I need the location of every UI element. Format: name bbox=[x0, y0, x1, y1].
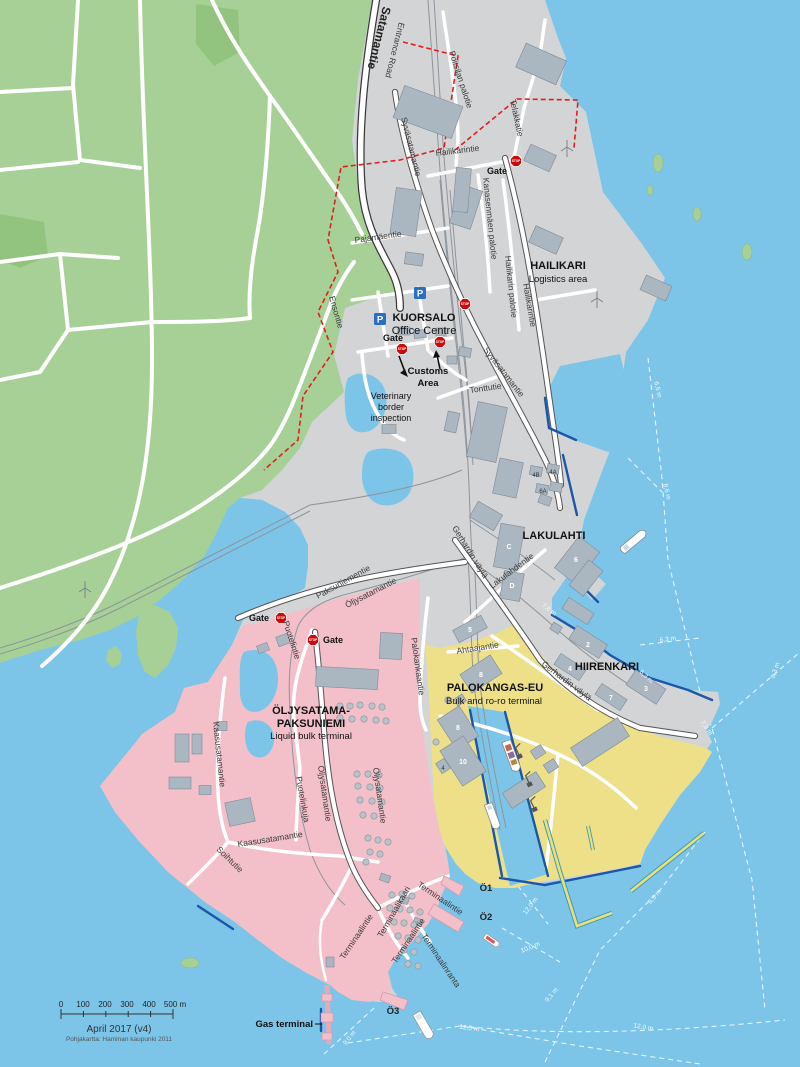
label-bldg-num-8a: 8 bbox=[479, 672, 483, 679]
label-gate-hailikari: Gate bbox=[487, 166, 507, 176]
storage-tank bbox=[383, 718, 389, 724]
label-pier-o2: Ö2 bbox=[480, 912, 493, 923]
label-bldg-num-7: 7 bbox=[609, 695, 613, 702]
building bbox=[379, 632, 402, 659]
label-bldg-num-c: C bbox=[506, 544, 511, 551]
label-area-lakulahti: LAKULAHTI bbox=[523, 530, 586, 542]
stop-sign-icon: STOP bbox=[510, 155, 521, 166]
storage-tank bbox=[371, 813, 377, 819]
label-area-hailikari: HAILIKARI bbox=[530, 260, 586, 272]
storage-tank bbox=[377, 851, 383, 857]
storage-tank bbox=[361, 716, 367, 722]
storage-tank bbox=[367, 784, 373, 790]
label-bldg-num-d: D bbox=[509, 583, 514, 590]
label-area-hiirenkari: HIIRENKARI bbox=[575, 661, 639, 673]
building bbox=[458, 347, 471, 358]
port-map: STOPSTOPSTOPSTOPSTOPSTOPPP SatamantieEnt… bbox=[0, 0, 800, 1067]
storage-tank bbox=[401, 920, 407, 926]
building bbox=[316, 666, 379, 689]
stop-sign-icon: STOP bbox=[459, 298, 470, 309]
stop-sign-text: STOP bbox=[309, 638, 318, 642]
building bbox=[404, 252, 423, 266]
label-bldg-num-6a: 6A bbox=[539, 489, 546, 495]
label-bldg-num-8b: 8 bbox=[456, 725, 460, 732]
label-bldg-num-2: 2 bbox=[586, 642, 590, 649]
label-bldg-num-10: 10 bbox=[459, 759, 467, 766]
label-vet-line2: border bbox=[378, 402, 404, 412]
parking-icon: P bbox=[374, 313, 386, 326]
storage-tank bbox=[379, 704, 385, 710]
building bbox=[382, 425, 396, 434]
label-gate-kuorsalo: Gate bbox=[383, 333, 403, 343]
parking-icon-letter: P bbox=[417, 289, 424, 300]
label-bldg-num-5: 5 bbox=[468, 627, 472, 634]
label-customs-line1: Customs bbox=[408, 366, 449, 377]
label-area-hailikari-sub: Logistics area bbox=[529, 274, 588, 285]
label-scale-0: 0 bbox=[59, 1000, 64, 1009]
storage-tank bbox=[373, 717, 379, 723]
storage-tank bbox=[395, 933, 401, 939]
stop-sign-icon: STOP bbox=[307, 634, 318, 645]
label-vet-line3: inspection bbox=[371, 413, 412, 423]
storage-tank bbox=[363, 859, 369, 865]
label-map-source: Pohjakartta: Haminan kaupunki 2011 bbox=[66, 1036, 172, 1043]
label-pier-o1: Ö1 bbox=[480, 883, 493, 894]
label-map-date: April 2017 (v4) bbox=[86, 1024, 151, 1035]
stop-sign-text: STOP bbox=[512, 159, 521, 163]
stop-sign-text: STOP bbox=[398, 347, 407, 351]
building bbox=[192, 734, 202, 754]
label-scale-200: 200 bbox=[98, 1000, 112, 1009]
storage-tank bbox=[367, 849, 373, 855]
storage-tank bbox=[415, 963, 421, 969]
label-scale-100: 100 bbox=[76, 1000, 90, 1009]
building bbox=[175, 734, 189, 762]
port-map-page: STOPSTOPSTOPSTOPSTOPSTOPPP SatamantieEnt… bbox=[0, 0, 800, 1067]
label-area-oljysatama-2: PAKSUNIEMI bbox=[277, 718, 345, 730]
stop-sign-text: STOP bbox=[436, 340, 445, 344]
building bbox=[169, 777, 191, 789]
storage-tank bbox=[354, 771, 360, 777]
label-area-palokangas-sub: Bulk and ro-ro terminal bbox=[446, 696, 542, 707]
label-bldg-num-3: 3 bbox=[644, 686, 648, 693]
storage-tank bbox=[365, 771, 371, 777]
storage-tank bbox=[417, 909, 423, 915]
stop-sign-text: STOP bbox=[461, 302, 470, 306]
label-area-palokangas: PALOKANGAS-EU bbox=[447, 682, 543, 694]
label-scale-400: 400 bbox=[142, 1000, 156, 1009]
storage-tank bbox=[385, 839, 391, 845]
storage-tank bbox=[407, 907, 413, 913]
label-scale-300: 300 bbox=[120, 1000, 134, 1009]
label-area-oljysatama-sub: Liquid bulk terminal bbox=[270, 731, 352, 742]
label-bldg-num-4a: 4A bbox=[549, 470, 556, 476]
label-gas-terminal: Gas terminal bbox=[255, 1019, 313, 1030]
storage-tank bbox=[411, 949, 417, 955]
storage-tank bbox=[369, 798, 375, 804]
building bbox=[225, 798, 255, 827]
storage-tank bbox=[360, 812, 366, 818]
label-bldg-num-4b: 4B bbox=[532, 473, 539, 479]
building bbox=[199, 786, 211, 795]
storage-tank bbox=[357, 702, 363, 708]
label-bldg-num-4: 4 bbox=[568, 666, 572, 673]
storage-tank bbox=[355, 783, 361, 789]
building bbox=[549, 482, 562, 493]
label-gate-oljysatama: Gate bbox=[323, 635, 343, 645]
storage-tank bbox=[375, 837, 381, 843]
label-gate-paksuniemi: Gate bbox=[249, 613, 269, 623]
label-scale-500: 500 m bbox=[164, 1000, 187, 1009]
storage-tank bbox=[389, 892, 395, 898]
storage-tank bbox=[365, 835, 371, 841]
parking-icon-letter: P bbox=[377, 315, 384, 326]
stop-sign-icon: STOP bbox=[434, 336, 445, 347]
parking-icon: P bbox=[414, 287, 426, 300]
label-pier-o3: Ö3 bbox=[387, 1006, 400, 1017]
storage-tank bbox=[405, 961, 411, 967]
storage-tank bbox=[433, 739, 439, 745]
label-area-oljysatama-1: ÖLJYSATAMA- bbox=[272, 704, 350, 717]
gas-pier bbox=[321, 985, 333, 1044]
stop-sign-text: STOP bbox=[277, 616, 286, 620]
label-vet-line1: Veterinary bbox=[371, 391, 412, 401]
building bbox=[326, 957, 334, 967]
label-bldg-num-6: 6 bbox=[574, 557, 578, 564]
storage-tank bbox=[357, 797, 363, 803]
storage-tank bbox=[369, 703, 375, 709]
stop-sign-icon: STOP bbox=[396, 343, 407, 354]
label-area-kuorsalo: KUORSALO bbox=[393, 312, 456, 324]
label-customs-line2: Area bbox=[417, 378, 439, 389]
building bbox=[447, 356, 457, 364]
